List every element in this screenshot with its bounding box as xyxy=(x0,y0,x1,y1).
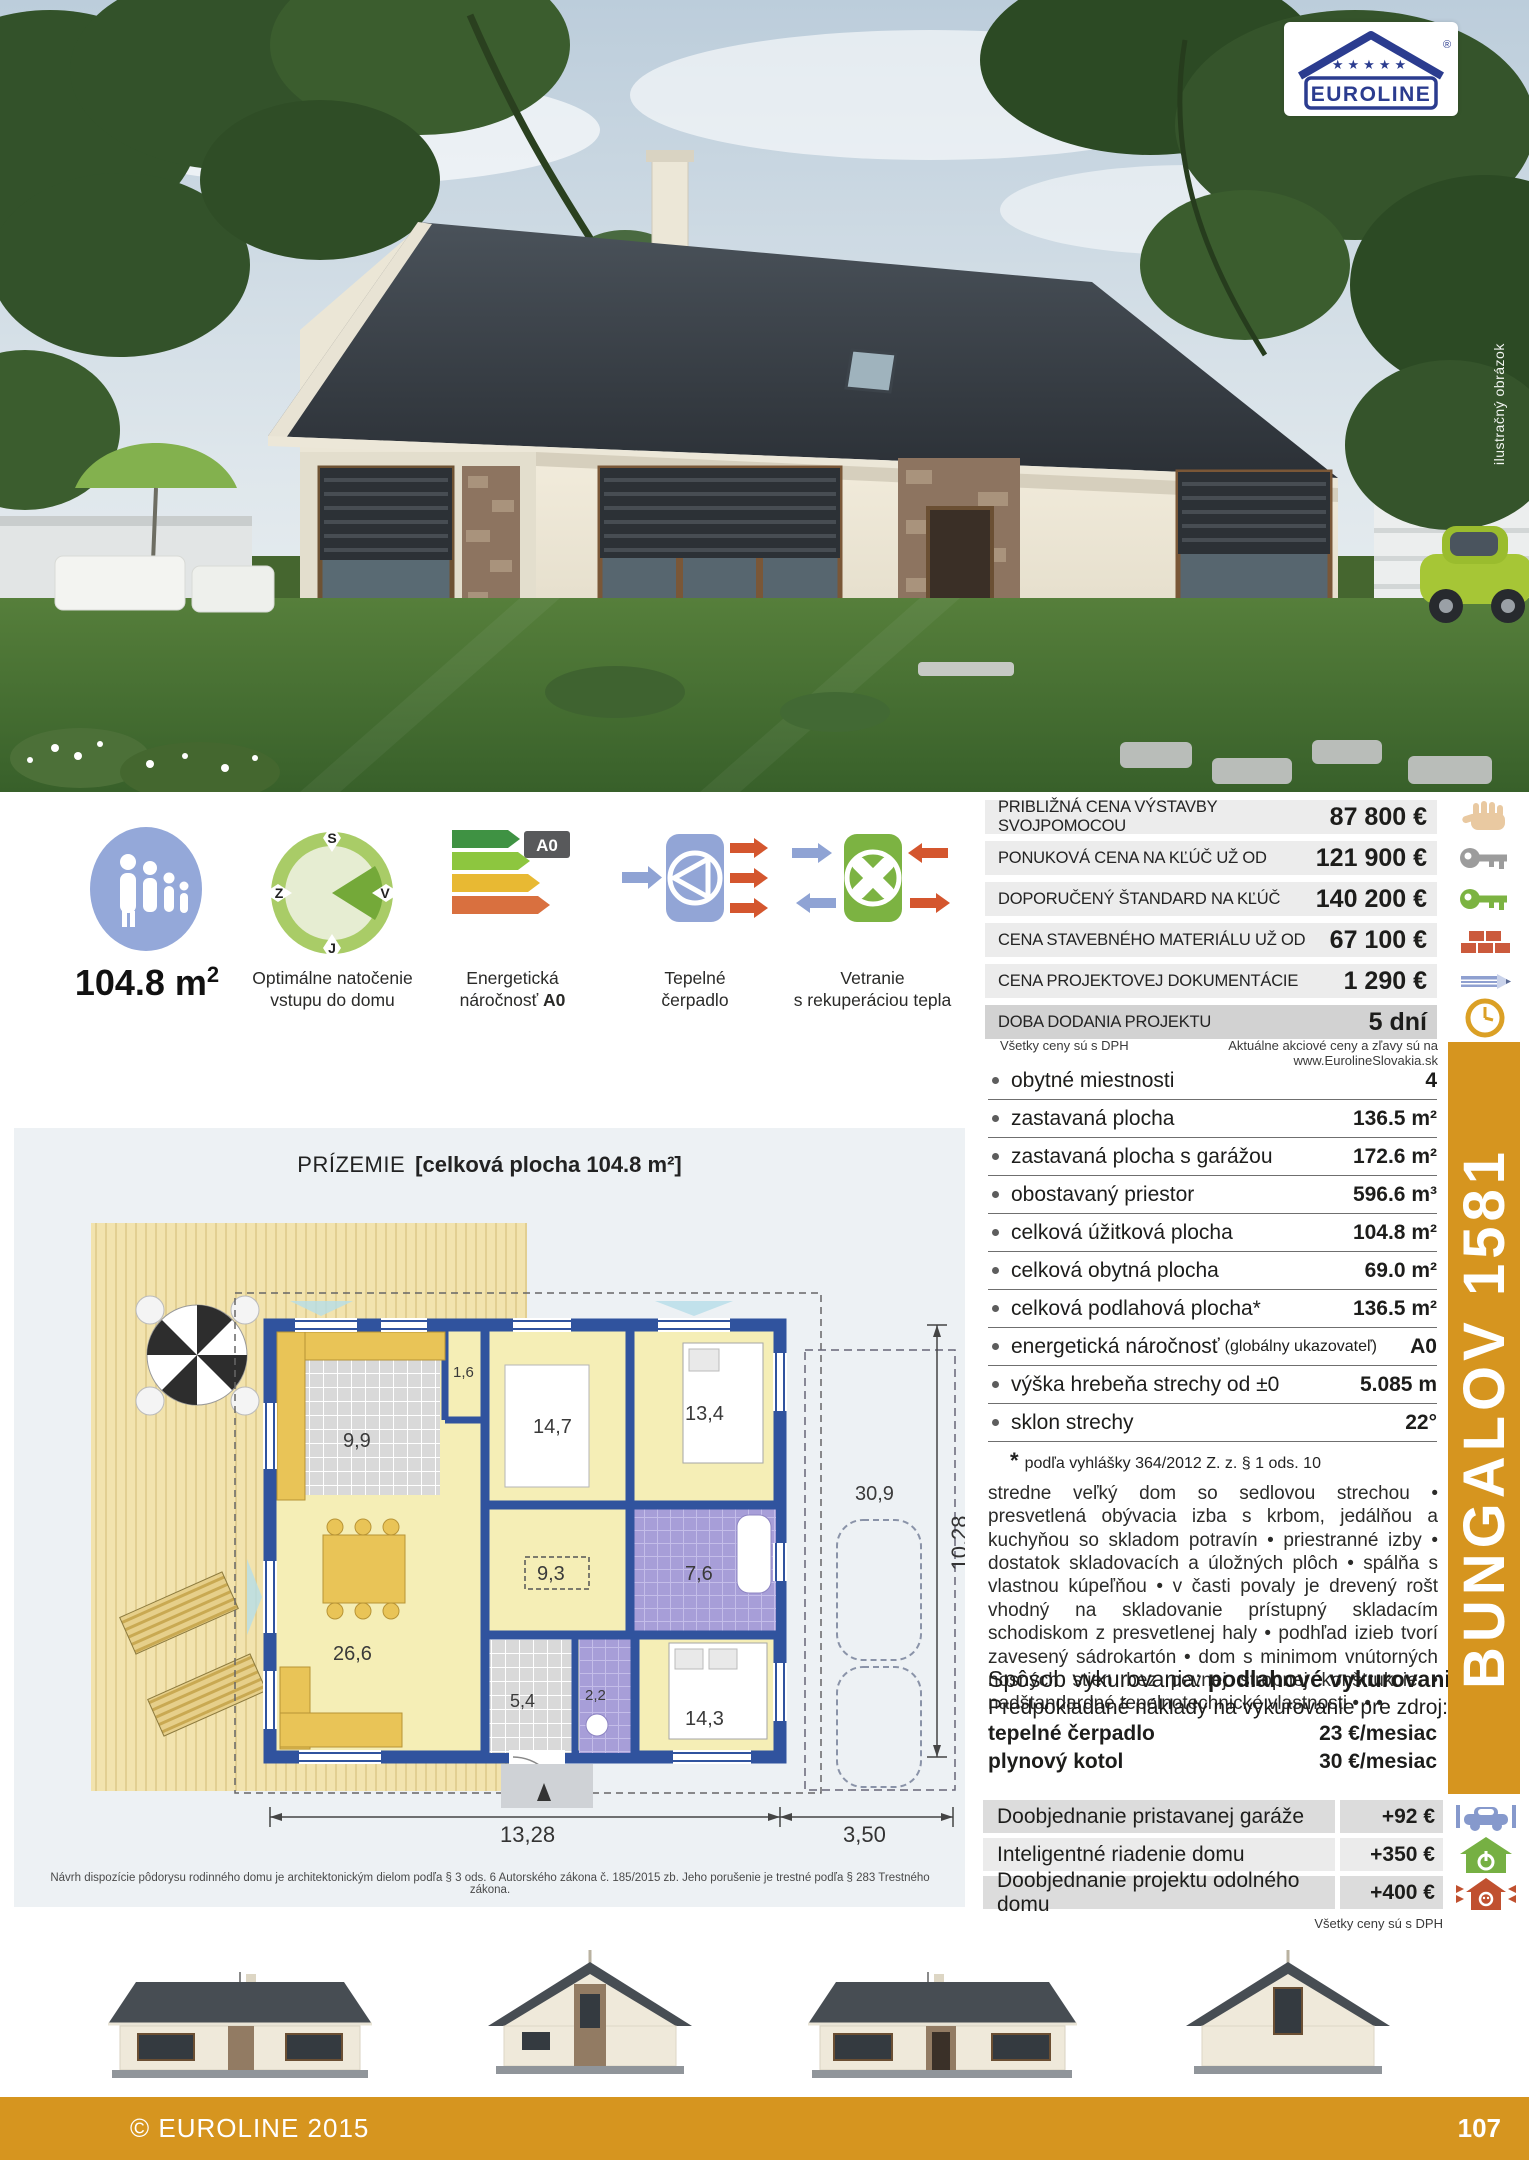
spec-footnote: *podľa vyhlášky 364/2012 Z. z. § 1 ods. … xyxy=(1010,1448,1440,1474)
heating-row: plynový kotol30 €/mesiac xyxy=(988,1750,1437,1774)
option-label: Inteligentné riadenie domu xyxy=(983,1838,1335,1871)
room-area: 14,3 xyxy=(685,1708,724,1730)
key-gray-icon xyxy=(1452,841,1518,875)
compass-caption: Optimálne natočenievstupu do domu xyxy=(240,968,425,1012)
compass-icon: S Z V J xyxy=(262,822,402,964)
price-row: PRIBLIŽNÁ CENA VÝSTAVBY SVOJPOMOCOU 87 8… xyxy=(985,800,1437,834)
price-row: DOBA DODANIA PROJEKTU 5 dní xyxy=(985,1005,1437,1039)
spec-row: zastavaná plocha 136.5 m² xyxy=(988,1100,1437,1138)
bricks-icon xyxy=(1452,923,1518,957)
terrace-umbrella-icon xyxy=(136,1296,259,1415)
heating-row: tepelné čerpadlo23 €/mesiac xyxy=(988,1722,1437,1746)
option-value: +350 € xyxy=(1340,1838,1443,1871)
svg-text:J: J xyxy=(328,940,336,956)
bullet-icon xyxy=(992,1115,999,1122)
kitchen-floor xyxy=(290,1355,440,1495)
room-area: 26,6 xyxy=(333,1643,372,1665)
plan-title: PRÍZEMIE[celková plocha 104.8 m²] xyxy=(14,1152,965,1178)
model-name-bar: BUNGALOV 1581 xyxy=(1448,1042,1520,1794)
spec-row: obostavaný priestor 596.6 m³ xyxy=(988,1176,1437,1214)
room-area: 7,6 xyxy=(685,1563,713,1585)
spec-row: energetická náročnosť(globálny ukazovate… xyxy=(988,1328,1437,1366)
logo-brand: EUROLINE xyxy=(1311,83,1432,106)
garage-outline xyxy=(805,1350,955,1790)
price-row: CENA STAVEBNÉHO MATERIÁLU UŽ OD 67 100 € xyxy=(985,923,1437,957)
family-area-icon xyxy=(88,826,204,952)
entry-walkway xyxy=(501,1764,593,1808)
model-name: BUNGALOV 1581 xyxy=(1451,1147,1518,1689)
bullet-icon xyxy=(992,1153,999,1160)
spec-row: výška hrebeňa strechy od ±0 5.085 m xyxy=(988,1366,1437,1404)
car-icon xyxy=(1452,1800,1520,1833)
page-footer: © EUROLINE 2015 107 xyxy=(0,2097,1529,2160)
spec-row: sklon strechy 22° xyxy=(988,1404,1437,1442)
room-area: 14,7 xyxy=(533,1416,572,1438)
room-area: 9,3 xyxy=(537,1563,565,1585)
price-label: CENA PROJEKTOVEJ DOKUMENTÁCIE xyxy=(985,972,1298,991)
svg-text:S: S xyxy=(327,830,336,846)
floor-plan: 9,9 1,6 14,7 13,4 9,3 7,6 26,6 5,4 2,2 1… xyxy=(85,1205,965,1845)
room-area: 5,4 xyxy=(510,1691,535,1711)
heating-title: Spôsob vykurovania: podlahové vykurovani… xyxy=(988,1666,1464,1693)
key-green-icon xyxy=(1452,882,1518,916)
smart-home-icon xyxy=(1452,1838,1520,1871)
pencil-icon xyxy=(1452,964,1518,998)
skylight xyxy=(846,350,896,392)
room-area: 1,6 xyxy=(453,1364,474,1381)
price-note-left: Všetky ceny sú s DPH xyxy=(1000,1038,1129,1053)
energy-class-icon: A0 xyxy=(452,830,574,916)
dim-label: 10,28 xyxy=(947,1515,965,1570)
svg-text:V: V xyxy=(380,885,390,901)
heat-pump-caption: Tepelnéčerpadlo xyxy=(630,968,760,1012)
room-area: 13,4 xyxy=(685,1403,724,1425)
clock-icon xyxy=(1462,996,1508,1045)
elevation-back xyxy=(800,1972,1085,2082)
hand-icon xyxy=(1452,800,1518,834)
price-row: CENA PROJEKTOVEJ DOKUMENTÁCIE 1 290 € xyxy=(985,964,1437,998)
page-number: 107 xyxy=(1458,2113,1501,2144)
price-value: 1 290 € xyxy=(1344,967,1437,996)
bullet-icon xyxy=(992,1343,999,1350)
energy-caption: Energetická náročnosť A0 xyxy=(430,968,595,1012)
price-label: CENA STAVEBNÉHO MATERIÁLU UŽ OD xyxy=(985,931,1305,950)
bullet-icon xyxy=(992,1381,999,1388)
area-badge: 104.8 m2 xyxy=(52,962,242,1004)
bullet-icon xyxy=(992,1191,999,1198)
svg-text:A0: A0 xyxy=(536,836,558,855)
option-label: Doobjednanie pristavanej garáže xyxy=(983,1800,1335,1833)
catalog-page: ilustračný obrázok ★★★★★ ® EUROLINE 104.… xyxy=(0,0,1529,2160)
euroline-logo: ★★★★★ ® EUROLINE xyxy=(1284,22,1458,116)
svg-text:Z: Z xyxy=(275,885,284,901)
elevation-side-right xyxy=(1170,1948,1405,2082)
price-label: DOBA DODANIA PROJEKTU xyxy=(985,1013,1211,1032)
spec-row: celková obytná plocha 69.0 m² xyxy=(988,1252,1437,1290)
price-label: DOPORUČENÝ ŠTANDARD NA KĽÚČ xyxy=(985,890,1280,909)
bullet-icon xyxy=(992,1305,999,1312)
spec-row: obytné miestnosti 4 xyxy=(988,1062,1437,1100)
room-area: 2,2 xyxy=(585,1687,606,1704)
house-photo: ilustračný obrázok xyxy=(0,0,1529,792)
photo-caption: ilustračný obrázok xyxy=(1491,343,1507,465)
copyright-disclaimer: Návrh dispozície pôdorysu rodinného domu… xyxy=(30,1872,950,1896)
ventilation-caption: Vetranies rekuperáciou tepla xyxy=(770,968,975,1012)
price-row: DOPORUČENÝ ŠTANDARD NA KĽÚČ 140 200 € xyxy=(985,882,1437,916)
price-label: PRIBLIŽNÁ CENA VÝSTAVBY SVOJPOMOCOU xyxy=(985,798,1330,836)
dim-label: 3,50 xyxy=(843,1822,886,1845)
option-label: Doobjednanie projektu odolného domu xyxy=(983,1876,1335,1909)
spec-row: zastavaná plocha s garážou 172.6 m² xyxy=(988,1138,1437,1176)
resilient-house-icon xyxy=(1452,1876,1520,1909)
spec-row: celková podlahová plocha* 136.5 m² xyxy=(988,1290,1437,1328)
price-value: 67 100 € xyxy=(1330,926,1437,955)
ventilation-icon xyxy=(788,830,956,926)
price-value: 5 dní xyxy=(1369,1008,1437,1037)
room-area: 9,9 xyxy=(343,1430,371,1452)
bullet-icon xyxy=(992,1267,999,1274)
logo-stars: ★★★★★ xyxy=(1332,57,1410,72)
logo-registered: ® xyxy=(1443,39,1451,51)
bullet-icon xyxy=(992,1077,999,1084)
bullet-icon xyxy=(992,1229,999,1236)
spec-row: celková úžitková plocha 104.8 m² xyxy=(988,1214,1437,1252)
dim-label: 13,28 xyxy=(500,1822,555,1845)
heat-pump-icon xyxy=(622,830,770,926)
price-row: PONUKOVÁ CENA NA KĽÚČ UŽ OD 121 900 € xyxy=(985,841,1437,875)
price-value: 121 900 € xyxy=(1316,844,1437,873)
garage-area: 30,9 xyxy=(855,1483,894,1505)
elevation-front xyxy=(100,1972,380,2082)
option-value: +400 € xyxy=(1340,1876,1443,1909)
option-value: +92 € xyxy=(1340,1800,1443,1833)
copyright: © EUROLINE 2015 xyxy=(130,2113,369,2144)
price-value: 87 800 € xyxy=(1330,803,1437,832)
price-label: PONUKOVÁ CENA NA KĽÚČ UŽ OD xyxy=(985,849,1267,868)
price-value: 140 200 € xyxy=(1316,885,1437,914)
elevation-side-left xyxy=(470,1948,710,2082)
options-note: Všetky ceny sú s DPH xyxy=(1140,1916,1443,1931)
bullet-icon xyxy=(992,1419,999,1426)
heating-subtitle: Predpokladané náklady na vykurovanie pre… xyxy=(988,1696,1448,1720)
